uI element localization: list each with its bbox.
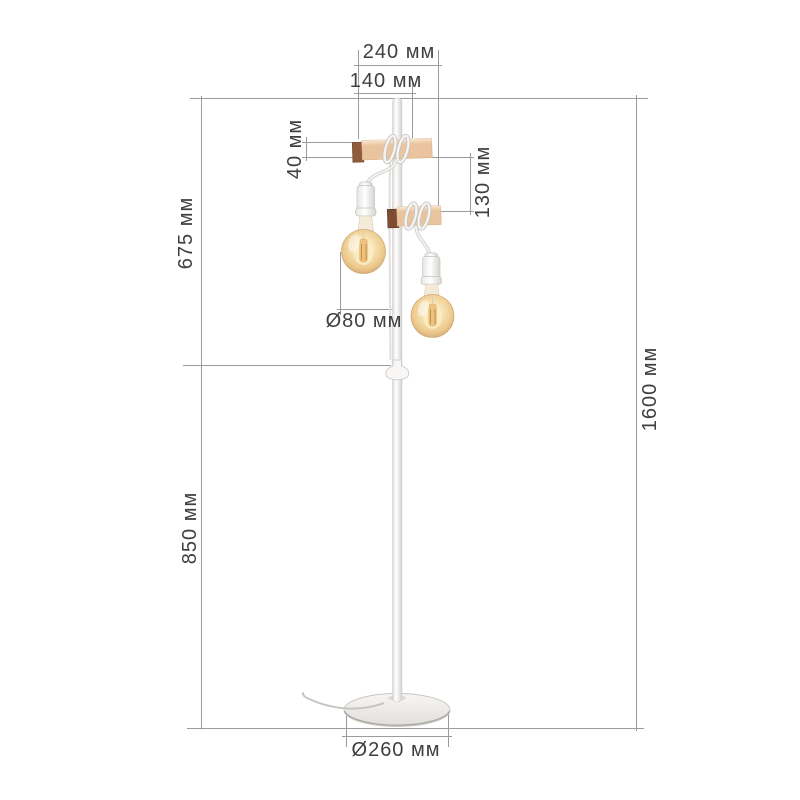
dimension-diagram: 240 мм 140 мм 40 мм 130 мм 675 мм 850 мм… bbox=[0, 0, 800, 800]
dim-label-block-height: 40 мм bbox=[285, 119, 305, 179]
dim-label-total-height: 1600 мм bbox=[640, 347, 660, 432]
dim-label-fixture-width: 240 мм bbox=[363, 42, 435, 62]
upper-bulb-socket bbox=[356, 182, 377, 216]
dim-label-block-gap: 130 мм bbox=[473, 146, 493, 218]
lower-block-cord-loops bbox=[403, 202, 431, 229]
floor-lamp bbox=[303, 98, 454, 727]
lamp-pole bbox=[393, 98, 403, 702]
diagram-canvas bbox=[0, 0, 800, 800]
dim-label-upper-section: 675 мм bbox=[176, 197, 196, 269]
dim-label-bulb-diameter: Ø80 мм bbox=[326, 311, 403, 331]
dim-label-upper-block-width: 140 мм bbox=[350, 71, 422, 91]
dim-label-base-diameter: Ø260 мм bbox=[352, 740, 441, 760]
lower-bulb-socket bbox=[421, 253, 442, 285]
upper-block-cord-loops bbox=[382, 135, 410, 163]
dim-label-lower-section: 850 мм bbox=[180, 492, 200, 564]
upper-bulb bbox=[342, 216, 386, 274]
lower-bulb bbox=[411, 284, 454, 338]
cone-joint bbox=[386, 360, 409, 380]
